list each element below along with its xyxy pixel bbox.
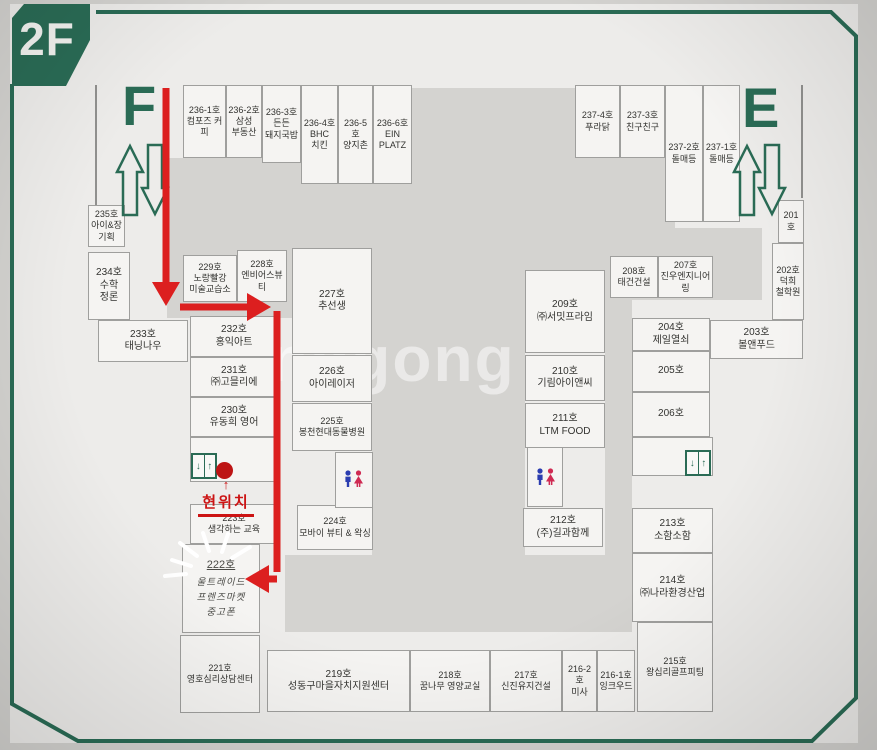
room-name: 울트레이드 프렌즈마켓 중고폰 — [197, 575, 246, 621]
current-location-label: 현위치 — [198, 491, 253, 517]
current-location-arrow-icon: ↑ — [190, 478, 262, 491]
room-237-4: 237-4호푸라닭 — [575, 85, 620, 158]
floor-badge-label: 2F — [14, 16, 80, 62]
room-202: 202호덕희 철학원 — [772, 243, 804, 320]
room-name: 돌매등 — [709, 154, 734, 165]
room-name: 잉크우드 — [599, 681, 632, 692]
man-icon — [345, 470, 350, 487]
room-209: 209호㈜서밋프라임 — [525, 270, 605, 353]
room-name: 엔비어스뷰티 — [239, 270, 285, 293]
room-number: 213호 — [660, 518, 686, 531]
room-237-3: 237-3호친구친구 — [620, 85, 665, 158]
room-number: 236-2호 — [228, 105, 259, 116]
room-number: 227호 — [319, 289, 345, 302]
room-number: 214호 — [660, 575, 686, 588]
current-location-marker: ↑ 현위치 — [190, 478, 262, 517]
room-number: 236-5호 — [340, 118, 371, 141]
courtyard-area — [285, 555, 605, 632]
room-number: 218호 — [438, 670, 461, 681]
room-237-2: 237-2호돌매등 — [665, 85, 703, 222]
room-number: 236-3호 — [266, 107, 297, 118]
room-236-2: 236-2호삼성 부동산 — [226, 85, 262, 158]
room-name: 든든 돼지국밥 — [265, 118, 298, 141]
room-226: 226호아이레이저 — [292, 355, 372, 402]
room-number: 211호 — [552, 413, 577, 426]
room-207: 207호진우엔지니어링 — [658, 256, 713, 298]
room-219: 219호성동구마을자치지원센터 — [267, 650, 410, 712]
room-235: 235호아이&장 기획 — [88, 205, 125, 247]
woman-icon — [354, 470, 363, 487]
room-231: 231호㈜고믈리에 — [190, 357, 278, 397]
stairwell-e-label: E — [742, 80, 779, 136]
room-number: 209호 — [552, 299, 578, 312]
room-number: 236-4호 — [304, 118, 335, 129]
room-number: 237-2호 — [668, 142, 699, 153]
room-236-1: 236-1호컴포즈 커피 — [183, 85, 226, 158]
room-227: 227호추선생 — [292, 248, 372, 354]
room-name: 기림아이앤씨 — [537, 378, 592, 391]
room-number: 217호 — [514, 670, 537, 681]
room-name: 양지촌 — [343, 140, 368, 151]
room-number: 208호 — [622, 266, 645, 277]
room-name: BHC 치킨 — [310, 129, 329, 152]
room-233: 233호태닝나우 — [98, 320, 188, 362]
room-221: 221호영호심리상담센터 — [180, 635, 260, 713]
room-number: 216-1호 — [600, 670, 631, 681]
room-number: 216-2호 — [564, 664, 595, 687]
room-216-1: 216-1호잉크우드 — [597, 650, 635, 712]
room-236-5: 236-5호양지촌 — [338, 85, 373, 184]
room-215: 215호왕십리골프피팅 — [637, 622, 713, 712]
restroom-icon-right — [534, 468, 558, 486]
room-name: 태건건설 — [617, 277, 650, 288]
room-name: ㈜나라환경산업 — [640, 588, 705, 601]
room-236-3: 236-3호든든 돼지국밥 — [262, 85, 301, 163]
elevator-icon-left: ↓ ↑ — [191, 453, 217, 479]
room-210: 210호기림아이앤씨 — [525, 355, 605, 401]
room-204: 204호제일열쇠 — [632, 318, 710, 351]
room-number: 225호 — [320, 416, 343, 427]
room-number: 221호 — [208, 663, 231, 674]
room-236-6: 236-6호EIN PLATZ — [373, 85, 412, 184]
room-name: 삼성 부동산 — [232, 116, 257, 139]
room-213: 213호소함소함 — [632, 508, 713, 553]
room-number: 237-3호 — [627, 110, 658, 121]
room-229: 229호노랑빨강 미술교습소 — [183, 255, 237, 302]
room-name: 태닝나우 — [125, 341, 162, 354]
room-number: 228호 — [250, 259, 273, 270]
room-name: EIN PLATZ — [379, 129, 406, 152]
elevator-down-arrow: ↓ — [690, 458, 695, 469]
room-name: 컴포즈 커피 — [185, 116, 224, 139]
room-name: ㈜서밋프라임 — [537, 312, 593, 325]
room-name: (주)길과함께 — [537, 528, 590, 541]
room-name: 볼앤푸드 — [738, 340, 775, 353]
elevator-up-arrow: ↑ — [701, 458, 706, 469]
room-name: 홍익아트 — [216, 337, 253, 350]
room-205: 205호 — [632, 351, 710, 392]
room-number: 237-1호 — [706, 142, 737, 153]
woman-icon — [546, 468, 555, 485]
room-number: 210호 — [552, 366, 578, 379]
room-number: 219호 — [326, 669, 352, 682]
room-name: LTM FOOD — [540, 426, 591, 439]
room-230: 230호유동희 영어 — [190, 397, 278, 437]
room-number: 207호 — [674, 260, 697, 271]
room-237-1: 237-1호돌매등 — [703, 85, 740, 222]
room-number: 235호 — [95, 209, 118, 220]
room-name: ㈜고믈리에 — [211, 377, 258, 390]
room-211: 211호LTM FOOD — [525, 403, 605, 448]
room-number: 232호 — [221, 324, 247, 337]
room-name: 꿈나무 영양교실 — [420, 681, 480, 692]
room-name: 소함소함 — [654, 531, 691, 544]
elevator-up-arrow: ↑ — [207, 461, 212, 472]
room-number: 201호 — [780, 210, 802, 233]
room-name: 모바이 뷰티 & 왁싱 — [299, 528, 370, 539]
room-name: 추선생 — [318, 301, 346, 314]
wall-line — [801, 85, 803, 198]
room-number: 204호 — [658, 322, 684, 335]
room-216-2: 216-2호미사 — [562, 650, 597, 712]
courtyard-area — [605, 270, 632, 632]
room-225: 225호봉천현대동물병원 — [292, 403, 372, 451]
room-232: 232호홍익아트 — [190, 316, 278, 357]
room-number: 202호 — [776, 265, 799, 276]
room-234: 234호수학 정론 — [88, 252, 130, 320]
stairwell-f-label: F — [122, 78, 156, 134]
elevator-icon-right: ↓ ↑ — [685, 450, 711, 476]
room-name: 제일열쇠 — [653, 335, 690, 348]
room-name: 수학 정론 — [100, 280, 118, 305]
room-name: 성동구마을자치지원센터 — [288, 681, 389, 694]
room-number: 237-4호 — [582, 110, 613, 121]
room-224: 224호모바이 뷰티 & 왁싱 — [297, 505, 373, 550]
wall-line — [95, 85, 97, 205]
room-214: 214호㈜나라환경산업 — [632, 553, 713, 622]
room-name: 친구친구 — [626, 122, 659, 133]
room-name: 영호심리상담센터 — [187, 674, 253, 685]
room-number: 212호 — [550, 515, 576, 528]
room-number: 215호 — [663, 656, 686, 667]
restroom-icon-left — [342, 470, 366, 488]
room-name: 노랑빨강 미술교습소 — [189, 273, 230, 296]
room-number: 234호 — [96, 267, 122, 280]
room-name: 돌매등 — [672, 154, 697, 165]
room-number: 236-1호 — [189, 105, 220, 116]
room-number: 229호 — [198, 262, 221, 273]
room-208: 208호태건건설 — [610, 256, 658, 298]
room-228: 228호엔비어스뷰티 — [237, 250, 287, 302]
room-number: 230호 — [221, 405, 247, 418]
room-number: 236-6호 — [377, 118, 408, 129]
room-number: 226호 — [319, 366, 345, 379]
room-number: 222호 — [207, 557, 235, 575]
room-number: 203호 — [744, 327, 770, 340]
room-217: 217호신진유지건설 — [490, 650, 562, 712]
room-number: 224호 — [323, 516, 346, 527]
room-number: 206호 — [658, 408, 684, 421]
room-name: 미사 — [571, 687, 588, 698]
room-222: 222호울트레이드 프렌즈마켓 중고폰 — [182, 544, 260, 633]
courtyard-area — [525, 158, 635, 270]
room-name: 왕십리골프피팅 — [646, 667, 704, 678]
room-number: 233호 — [130, 329, 156, 342]
room-name: 푸라닭 — [585, 122, 610, 133]
elevator-down-arrow: ↓ — [196, 461, 201, 472]
room-212: 212호(주)길과함께 — [523, 508, 603, 547]
room-name: 신진유지건설 — [501, 681, 551, 692]
room-201: 201호 — [778, 200, 804, 243]
room-name: 생각하는 교육 — [208, 524, 260, 535]
room-number: 205호 — [658, 365, 684, 378]
room-206: 206호 — [632, 392, 710, 437]
room-203: 203호볼앤푸드 — [710, 320, 803, 359]
room-name: 아이&장 기획 — [91, 220, 122, 243]
room-name: 덕희 철학원 — [776, 276, 801, 299]
room-name: 유동희 영어 — [210, 417, 259, 430]
room-name: 진우엔지니어링 — [660, 271, 711, 294]
room-number: 231호 — [221, 365, 247, 378]
man-icon — [537, 468, 542, 485]
floor-map-photo: onggong 236-1호컴포즈 커피236-2호삼성 부동산236-3호든든… — [0, 0, 877, 750]
room-236-4: 236-4호BHC 치킨 — [301, 85, 338, 184]
room-name: 봉천현대동물병원 — [299, 427, 365, 438]
room-name: 아이레이저 — [309, 379, 355, 392]
room-218: 218호꿈나무 영양교실 — [410, 650, 490, 712]
